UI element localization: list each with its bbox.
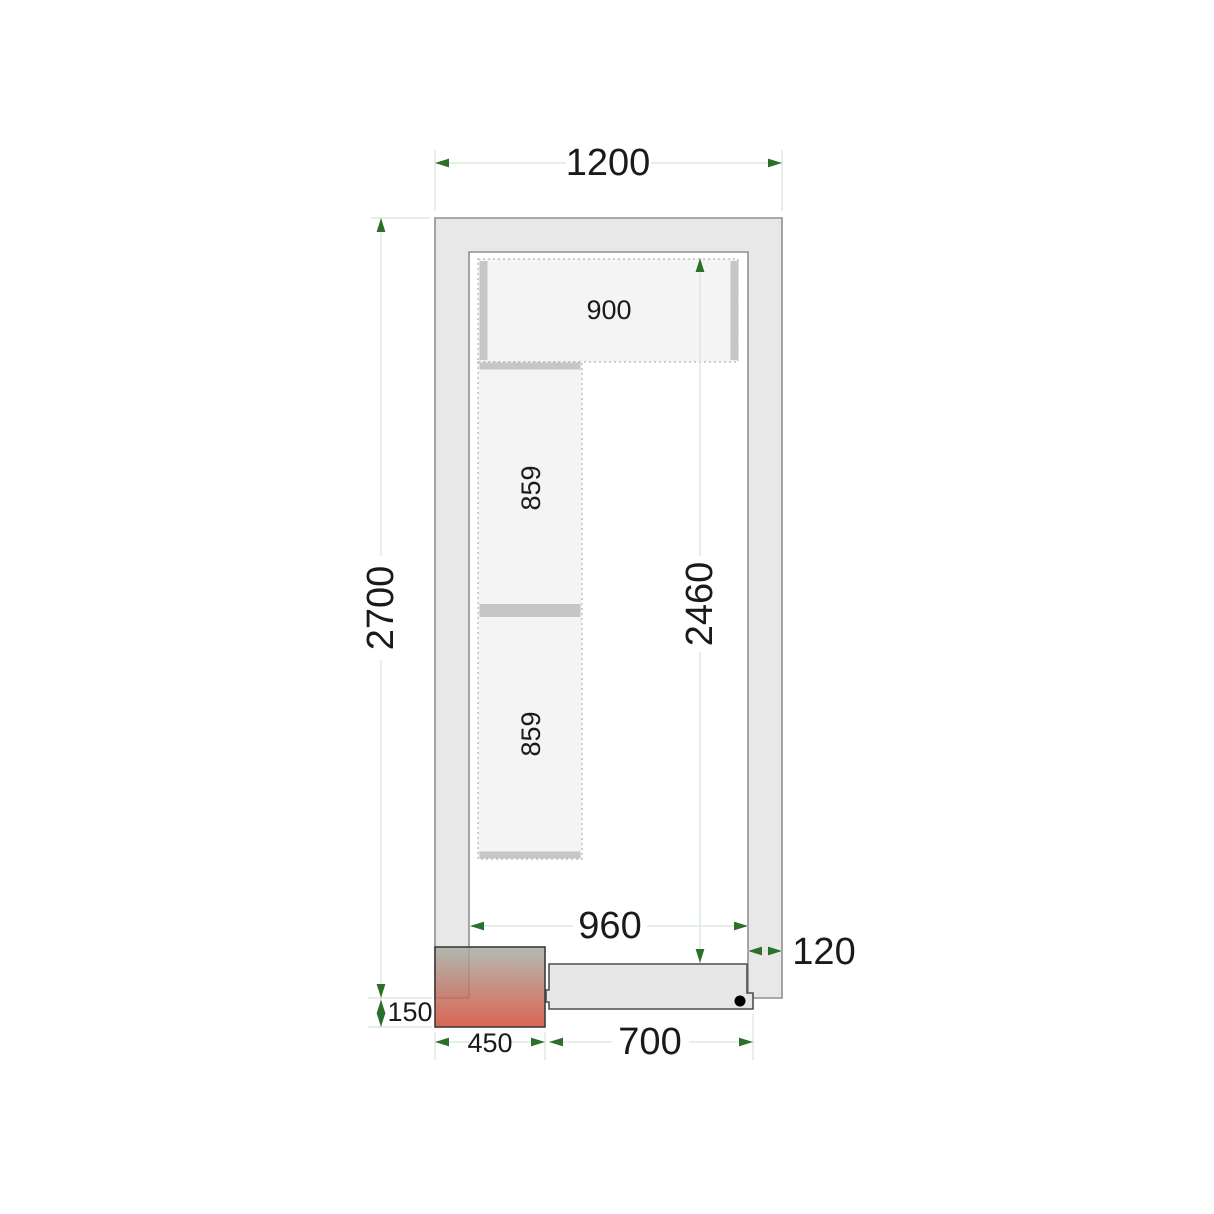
arrow-960-left [470, 922, 484, 931]
dim-label-interior-width: 960 [578, 905, 641, 947]
dim-label-interior-depth: 2460 [679, 562, 721, 647]
arrow-450-right [531, 1038, 545, 1047]
shelf-label-top: 900 [586, 295, 631, 325]
cold-room-floor-plan: 1200 2700 2460 960 120 700 450 150 900 8… [0, 0, 1214, 1214]
arrow-700-right [739, 1038, 753, 1047]
shelf-label-upper: 859 [516, 465, 546, 510]
arrow-150-top [377, 1000, 386, 1014]
dim-label-total-width: 1200 [566, 142, 651, 184]
arrow-2700-top [377, 218, 386, 232]
dim-label-wall-thickness: 120 [792, 931, 855, 973]
arrow-150-bottom [377, 1013, 386, 1027]
arrow-450-left [435, 1038, 449, 1047]
shelf-label-lower: 859 [516, 711, 546, 756]
arrow-2460-bottom [696, 949, 705, 963]
dim-label-door-width: 700 [618, 1021, 681, 1063]
dim-label-unit-depth: 150 [387, 997, 432, 1027]
top-shelf-support-right [731, 261, 739, 360]
dim-label-total-depth: 2700 [360, 566, 402, 651]
door-panel [546, 964, 753, 1009]
arrow-1200-right [768, 159, 782, 168]
arrow-700-left [549, 1038, 563, 1047]
left-shelf-support-middle [480, 604, 581, 617]
arrow-1200-left [435, 159, 449, 168]
dim-label-unit-width: 450 [467, 1028, 512, 1058]
left-shelf-support-bottom [480, 852, 581, 859]
left-shelf-support-top [480, 363, 581, 370]
top-shelf-support-left [480, 261, 488, 360]
arrow-960-right [734, 922, 748, 931]
arrow-2700-bottom [377, 984, 386, 998]
condensing-unit [435, 947, 545, 1027]
door-handle-dot [735, 996, 746, 1007]
floor-plan-canvas: 1200 2700 2460 960 120 700 450 150 900 8… [0, 0, 1214, 1214]
